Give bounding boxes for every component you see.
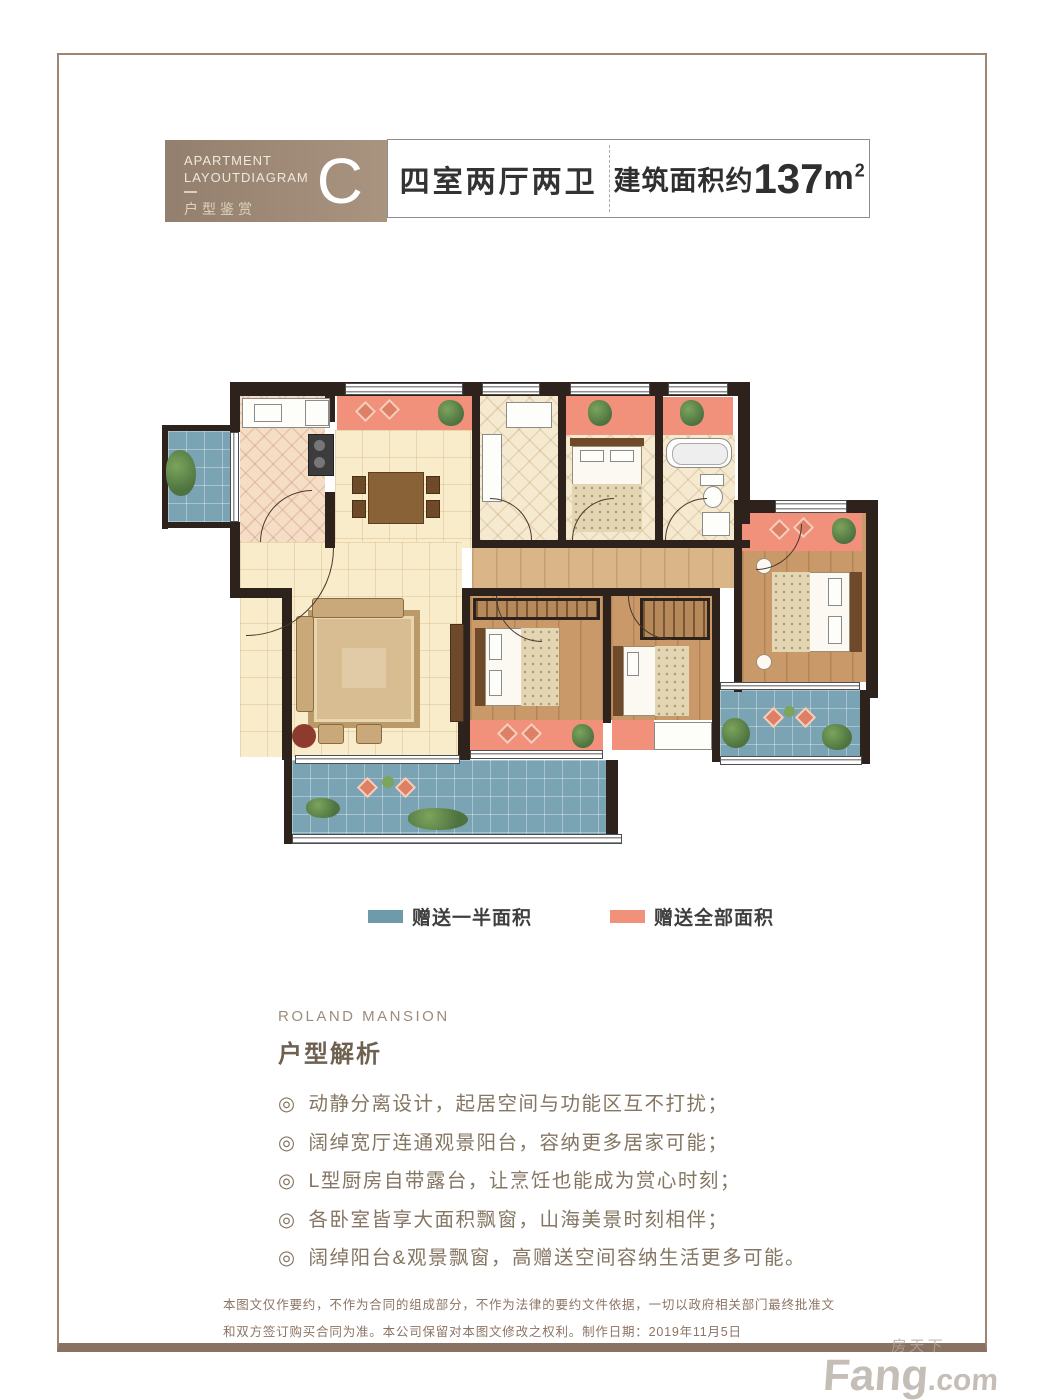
balcony-plant bbox=[306, 798, 340, 818]
eyebrow-divider bbox=[184, 191, 197, 193]
window-bedroom-top bbox=[570, 383, 650, 395]
dining-chair bbox=[352, 476, 366, 494]
wall-living-balcony-right bbox=[606, 760, 618, 844]
window-kitchen-balcony bbox=[230, 432, 239, 522]
bullet-item: ◎阔绰宽厅连通观景阳台，容纳更多居家可能； bbox=[278, 1134, 838, 1154]
wall-right-lower bbox=[866, 513, 878, 698]
fang-watermark: 房天下 Fang.com bbox=[822, 1335, 1038, 1396]
bullet-icon: ◎ bbox=[278, 1134, 297, 1154]
corridor-floor bbox=[472, 548, 740, 588]
area-value: 137 bbox=[753, 155, 823, 203]
room-config-label: 四室两厅两卫 bbox=[388, 140, 609, 217]
wall-study-bedroom bbox=[558, 382, 566, 548]
bay-plant bbox=[680, 400, 704, 426]
bullet-icon: ◎ bbox=[278, 1095, 297, 1115]
wall-kitchen-right-lower bbox=[325, 492, 335, 548]
stove-burner bbox=[314, 457, 325, 468]
wall-bedroom-a-corner bbox=[458, 720, 470, 760]
unit-letter: C bbox=[317, 144, 363, 218]
unit-info-box: 四室两厅两卫 建筑面积约137m2 bbox=[387, 139, 870, 218]
bullet-icon: ◎ bbox=[278, 1172, 297, 1192]
legend-half-swatch bbox=[368, 910, 403, 923]
flyer-page: APARTMENT LAYOUTDIAGRAM 户型鉴赏 C 四室两厅两卫 建筑… bbox=[0, 0, 1038, 1400]
balcony-plant bbox=[408, 808, 468, 830]
bullet-text: 各卧室皆享大面积飘窗，山海美景时刻相伴； bbox=[309, 1211, 729, 1231]
bedroom-b-headboard bbox=[613, 646, 623, 716]
wall-corridor-top bbox=[472, 540, 750, 548]
window-master-top bbox=[775, 500, 847, 513]
bay-plant bbox=[438, 400, 464, 426]
bullet-item: ◎动静分离设计，起居空间与功能区互不打扰； bbox=[278, 1095, 838, 1115]
wall-master-balcony-left bbox=[712, 690, 720, 762]
disclaimer-text: 本图文仅作要约，不作为合同的组成部分，不作为法律的要约文件依据，一切以政府相关部… bbox=[223, 1292, 835, 1346]
bed-pillow bbox=[828, 616, 842, 644]
bullet-item: ◎L型厨房自带露台，让烹饪也能成为赏心时刻； bbox=[278, 1172, 838, 1192]
dining-chair bbox=[426, 476, 440, 494]
analysis-title: 户型解析 bbox=[278, 1034, 838, 1069]
coffee-table bbox=[342, 648, 386, 688]
area-prefix: 建筑面积约 bbox=[613, 159, 753, 198]
bullet-text: L型厨房自带露台，让烹饪也能成为赏心时刻； bbox=[309, 1172, 741, 1192]
study-sofa bbox=[482, 434, 502, 502]
bullet-item: ◎阔绰阳台&观景飘窗，高赠送空间容纳生活更多可能。 bbox=[278, 1249, 838, 1269]
watermark-logo: Fang.com bbox=[822, 1356, 1037, 1396]
side-table bbox=[292, 724, 316, 748]
bay-plant bbox=[832, 518, 856, 544]
master-blanket bbox=[772, 572, 810, 652]
area-label: 建筑面积约137m2 bbox=[610, 140, 869, 217]
bullet-text: 阔绰阳台&观景飘窗，高赠送空间容纳生活更多可能。 bbox=[309, 1249, 807, 1269]
bathtub-basin bbox=[672, 443, 728, 465]
rail-master-balcony bbox=[720, 756, 862, 765]
bullet-list: ◎动静分离设计，起居空间与功能区互不打扰； ◎阔绰宽厅连通观景阳台，容纳更多居家… bbox=[278, 1095, 838, 1269]
window-bathroom bbox=[668, 383, 728, 395]
wall-bedroom-bath bbox=[655, 382, 663, 548]
kitchen-sink bbox=[254, 404, 282, 422]
kitchen-fridge bbox=[305, 400, 329, 426]
legend-full-label: 赠送全部面积 bbox=[654, 903, 774, 930]
analysis-section: ROLAND MANSION 户型解析 ◎动静分离设计，起居空间与功能区互不打扰… bbox=[278, 1008, 838, 1288]
balcony-table bbox=[784, 706, 795, 717]
wall-bedroom-a-b bbox=[603, 595, 611, 723]
balcony-table bbox=[382, 776, 394, 788]
tv-cabinet bbox=[450, 624, 464, 722]
armchair bbox=[318, 724, 344, 744]
bay-plant bbox=[588, 400, 612, 426]
floor-plan bbox=[160, 372, 888, 854]
bullet-text: 动静分离设计，起居空间与功能区互不打扰； bbox=[309, 1095, 729, 1115]
sofa-top bbox=[312, 598, 404, 618]
nightstand bbox=[756, 654, 772, 670]
window-dining-bay bbox=[345, 383, 463, 395]
dining-chair bbox=[426, 500, 440, 518]
legend-half-label: 赠送一半面积 bbox=[412, 903, 532, 930]
wall-dining-study bbox=[472, 382, 480, 548]
bullet-icon: ◎ bbox=[278, 1211, 297, 1231]
window-study bbox=[482, 383, 540, 395]
wall-living-balcony-left bbox=[284, 755, 292, 844]
toilet-tank bbox=[700, 474, 724, 486]
wall-kitchen-balcony-top bbox=[162, 425, 236, 431]
bedroom-b-window-box bbox=[654, 722, 712, 750]
wall-kitchen-balcony-bottom bbox=[162, 522, 236, 528]
bedroom-b-bay-window bbox=[612, 720, 654, 750]
stove-burner bbox=[314, 440, 325, 451]
master-headboard bbox=[850, 572, 862, 652]
bedroom-a-headboard bbox=[475, 628, 485, 706]
armchair bbox=[356, 724, 382, 744]
bullet-text: 阔绰宽厅连通观景阳台，容纳更多居家可能； bbox=[309, 1134, 729, 1154]
bedroom-b-blanket bbox=[655, 646, 689, 716]
bullet-icon: ◎ bbox=[278, 1249, 297, 1269]
bed-pillow bbox=[627, 652, 639, 676]
balcony-plant bbox=[822, 724, 852, 750]
bullet-item: ◎各卧室皆享大面积飘窗，山海美景时刻相伴； bbox=[278, 1211, 838, 1231]
wall-corridor-bottom bbox=[470, 588, 720, 596]
window-living-balcony bbox=[295, 755, 460, 764]
legend: 赠送一半面积 赠送全部面积 bbox=[368, 903, 774, 930]
wall-master-left bbox=[734, 500, 742, 692]
dining-table bbox=[368, 472, 424, 524]
window-master-balcony bbox=[720, 682, 860, 690]
window-bedroom-a-bay bbox=[470, 750, 603, 759]
bed-pillow bbox=[610, 450, 634, 462]
study-dresser bbox=[506, 402, 552, 428]
balcony-plant bbox=[166, 450, 196, 496]
bedroom-top-headboard bbox=[570, 438, 644, 446]
balcony-plant bbox=[722, 718, 750, 748]
bed-pillow bbox=[489, 670, 502, 696]
rail-living-balcony bbox=[292, 834, 622, 844]
wall-master-balcony-right bbox=[860, 690, 870, 764]
sofa-left bbox=[296, 616, 314, 712]
unit-title-box: APARTMENT LAYOUTDIAGRAM 户型鉴赏 C bbox=[165, 140, 387, 222]
brand-name: ROLAND MANSION bbox=[278, 1008, 838, 1025]
dining-chair bbox=[352, 500, 366, 518]
wall-kitchen-left-lower bbox=[230, 522, 240, 592]
legend-full-swatch bbox=[610, 910, 645, 923]
area-unit: m2 bbox=[824, 159, 866, 198]
bay-plant bbox=[572, 724, 594, 748]
bed-pillow bbox=[580, 450, 604, 462]
bed-pillow bbox=[828, 578, 842, 606]
bed-pillow bbox=[489, 634, 502, 660]
